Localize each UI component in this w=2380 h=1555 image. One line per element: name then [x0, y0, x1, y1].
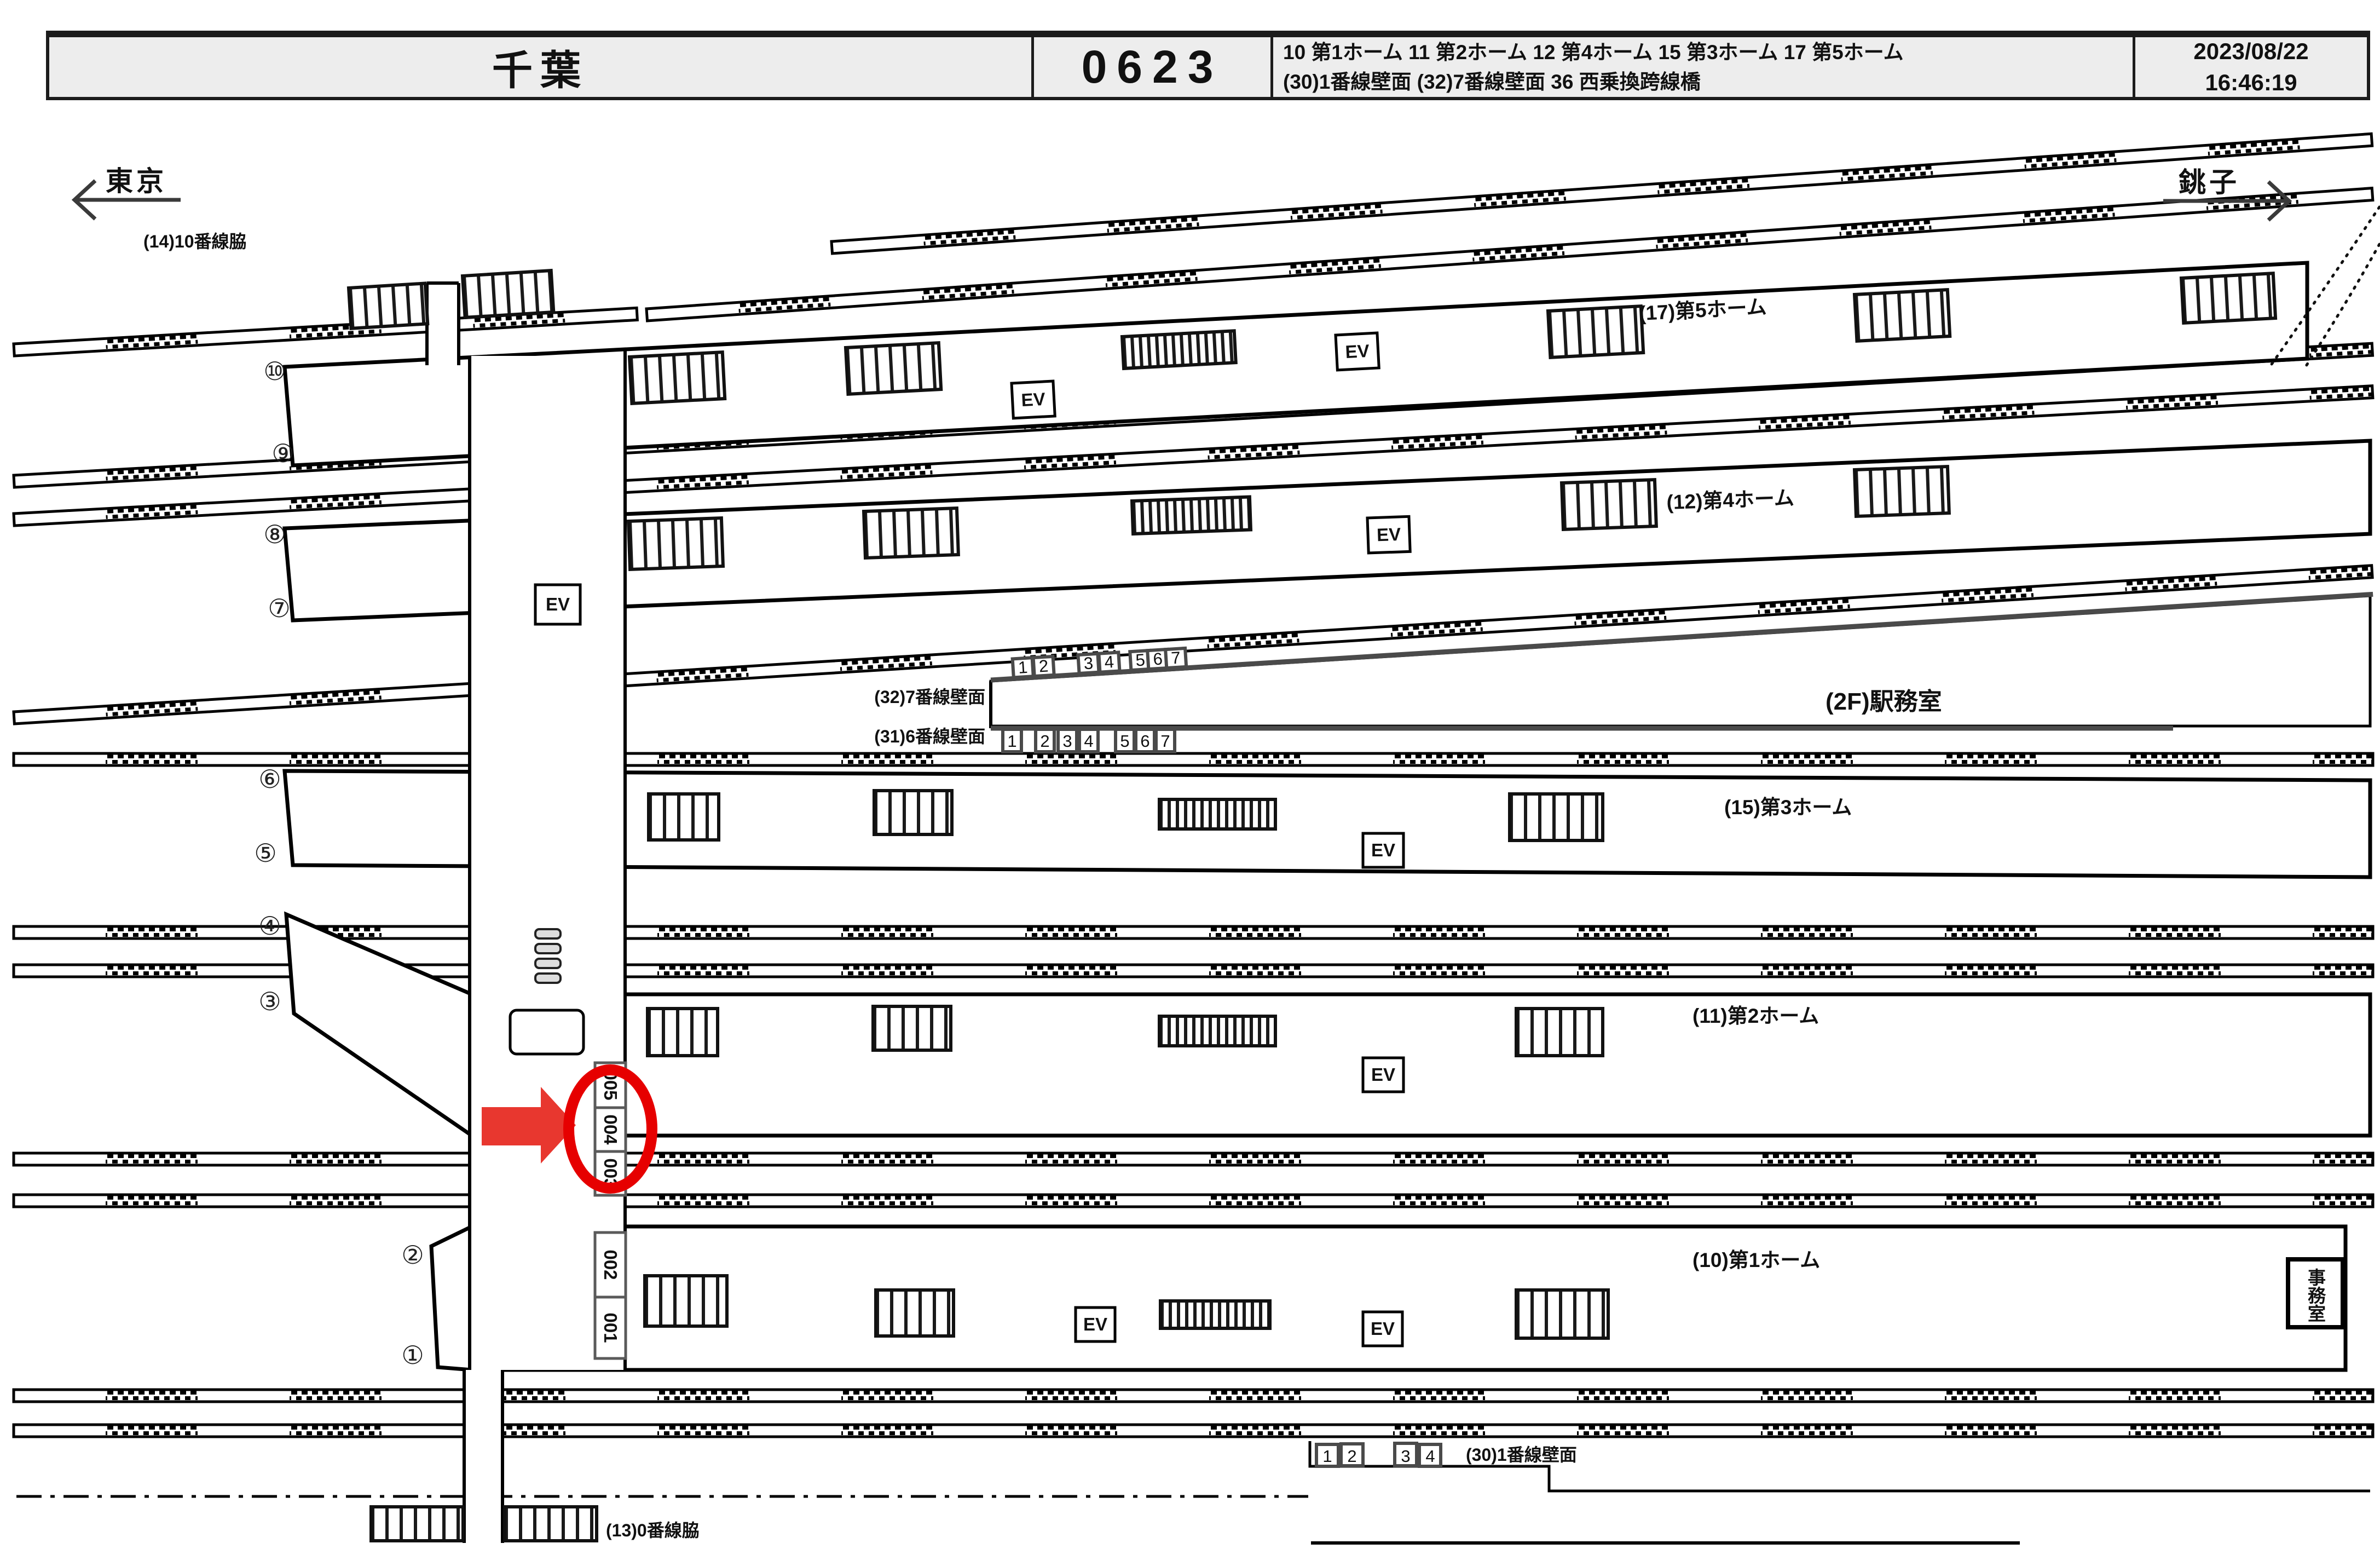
platform4-label: (12)第4ホーム: [1666, 487, 1795, 514]
escalator-icon: [1159, 1016, 1275, 1046]
track-number-4: ④: [258, 912, 281, 940]
timestamp-date: 2023/08/22: [2193, 36, 2308, 67]
elevator-box: EV: [535, 585, 580, 624]
transfer-bridge-deck: [470, 356, 625, 1370]
station-diagram: 1 2 3 4 5 6 7 1 2 3 4 5 6 7 1 2 3 4: [0, 0, 2380, 1555]
office-room-box: 事務室: [2288, 1259, 2343, 1327]
wall6-position-4-label: 4: [1084, 732, 1093, 751]
direction-west-label: 東京: [106, 166, 167, 197]
wall1-label: (30)1番線壁面: [1466, 1445, 1577, 1465]
wall6-group: 1 2 3 4 5 6 7: [1003, 729, 1175, 752]
stairs-icon: [649, 794, 719, 840]
wall7-position-5-label: 5: [1135, 650, 1146, 670]
stairs-icon: [1562, 480, 1656, 529]
elevator-box: EV: [1336, 333, 1379, 370]
track-line-6: [14, 753, 2373, 765]
office-room-label: 事務室: [2306, 1268, 2326, 1322]
escalator-icon: [1159, 799, 1275, 829]
stairs-icon: [2181, 273, 2275, 323]
stairs-icon: [1510, 794, 1603, 840]
station-name-text: 千葉: [492, 38, 588, 96]
stairs-icon: [1855, 466, 1949, 516]
stairs-icon: [645, 1276, 727, 1326]
track-number-6: ⑥: [258, 765, 281, 793]
wall6-position-1-label: 1: [1007, 732, 1016, 751]
platform3-label: (15)第3ホーム: [1724, 796, 1852, 819]
bridge-bottom-span: [464, 1370, 502, 1543]
stairs-icon: [349, 283, 428, 328]
wall1-position-4-label: 4: [1425, 1447, 1435, 1466]
stairs-icon: [874, 791, 952, 834]
elevator-box: EV: [1076, 1308, 1115, 1341]
escalator-icon: [1160, 1301, 1270, 1328]
stairs-icon: [629, 352, 725, 404]
track-number-10: ⑩: [263, 357, 286, 385]
wall1-position-1-label: 1: [1322, 1447, 1332, 1466]
timestamp: 2023/08/22 16:46:19: [2133, 37, 2367, 97]
board-number-text: 0623: [1082, 41, 1223, 94]
legend-line-1: 10 第1ホーム 11 第2ホーム 12 第4ホーム 15 第3ホーム 17 第…: [1283, 38, 2133, 67]
track10-side-label: (14)10番線脇: [143, 232, 247, 251]
elevator-label: EV: [1376, 524, 1401, 545]
direction-west: 東京: [74, 166, 181, 219]
station-office-label: (2F)駅務室: [1826, 688, 1942, 715]
bridge-position-001-label: 001: [600, 1312, 621, 1343]
stairs-icon: [505, 1507, 597, 1541]
bridge-top-span: [427, 283, 459, 365]
track-line-3: [14, 1153, 2373, 1165]
bridge-landing-box: [510, 1010, 584, 1054]
escalator-icon: [1122, 331, 1236, 368]
wall6-position-6-label: 6: [1140, 732, 1149, 751]
elevator-box: EV: [1367, 516, 1410, 553]
wall7-position-3-label: 3: [1083, 653, 1094, 673]
wall7-position-2-label: 2: [1038, 656, 1049, 676]
elevator-box: EV: [1012, 381, 1055, 418]
platform1-label: (10)第1ホーム: [1692, 1249, 1820, 1271]
elevator-label: EV: [1371, 1318, 1395, 1339]
stairs-icon: [463, 270, 553, 318]
elevator-label: EV: [546, 594, 570, 614]
track-number-9: ⑨: [271, 439, 294, 468]
wall7-position-7-label: 7: [1170, 648, 1181, 667]
stairs-icon: [873, 1006, 951, 1050]
stairs-icon: [864, 508, 958, 558]
track-line-0: [14, 1425, 2373, 1437]
stairs-icon: [1855, 290, 1950, 341]
stairs-icon: [648, 1009, 718, 1056]
track-line-5: [14, 926, 2373, 938]
direction-east-label: 銚子: [2179, 167, 2240, 198]
stairs-icon: [876, 1290, 954, 1336]
track-number-3: ③: [258, 987, 281, 1016]
wall1-position-2-label: 2: [1347, 1447, 1356, 1466]
bridge-position-002-label: 002: [600, 1249, 621, 1280]
elevator-label: EV: [1083, 1314, 1107, 1334]
stairs-icon: [1516, 1290, 1608, 1338]
escalator-icon: [1132, 497, 1251, 533]
elevator-label: EV: [1371, 1064, 1395, 1085]
track-line-top-left: [14, 308, 637, 356]
wall6-position-2-label: 2: [1040, 732, 1049, 751]
wall1-position-3-label: 3: [1401, 1447, 1410, 1466]
timestamp-time: 16:46:19: [2205, 67, 2297, 99]
track-number-7: ⑦: [268, 594, 290, 623]
wall7-position-4-label: 4: [1104, 652, 1114, 672]
elevator-box: EV: [1363, 1058, 1403, 1092]
stairs-icon: [1516, 1009, 1603, 1056]
track-line-2: [14, 1195, 2373, 1207]
wall7-label: (32)7番線壁面: [874, 687, 985, 707]
stairs-icon: [846, 343, 941, 394]
wall7-position-6-label: 6: [1153, 649, 1163, 669]
track0-side-label: (13)0番線脇: [606, 1521, 700, 1540]
track-number-8: ⑧: [263, 520, 286, 549]
legend: 10 第1ホーム 11 第2ホーム 12 第4ホーム 15 第3ホーム 17 第…: [1270, 37, 2133, 97]
elevator-label: EV: [1345, 341, 1370, 362]
elevator-box: EV: [1363, 1312, 1402, 1346]
platform2-label: (11)第2ホーム: [1692, 1005, 1819, 1027]
wall6-position-3-label: 3: [1062, 732, 1072, 751]
track-number-1: ①: [401, 1341, 424, 1369]
stairs-icon: [1548, 306, 1643, 358]
bridge-position-004-label: 004: [600, 1114, 621, 1145]
wall6-position-7-label: 7: [1160, 732, 1170, 751]
board-number: 0623: [1031, 37, 1270, 97]
station-name: 千葉: [49, 37, 1031, 97]
elevator-label: EV: [1021, 389, 1046, 410]
legend-line-2: (30)1番線壁面 (32)7番線壁面 36 西乗換跨線橋: [1283, 67, 2133, 97]
elevator-box: EV: [1363, 833, 1403, 867]
wall7-position-1-label: 1: [1018, 658, 1028, 677]
track-number-2: ②: [401, 1241, 424, 1269]
wall6-position-5-label: 5: [1120, 732, 1129, 751]
header-bar: 千葉 0623 10 第1ホーム 11 第2ホーム 12 第4ホーム 15 第3…: [46, 31, 2370, 100]
track-line-above-p5-b: [831, 134, 2372, 254]
elevator-label: EV: [1371, 840, 1395, 860]
stairs-icon: [628, 518, 723, 569]
track-line-1: [14, 1390, 2373, 1402]
stairs-icon: [371, 1507, 463, 1541]
wall6-label: (31)6番線壁面: [874, 727, 985, 746]
track-number-5: ⑤: [254, 839, 276, 867]
